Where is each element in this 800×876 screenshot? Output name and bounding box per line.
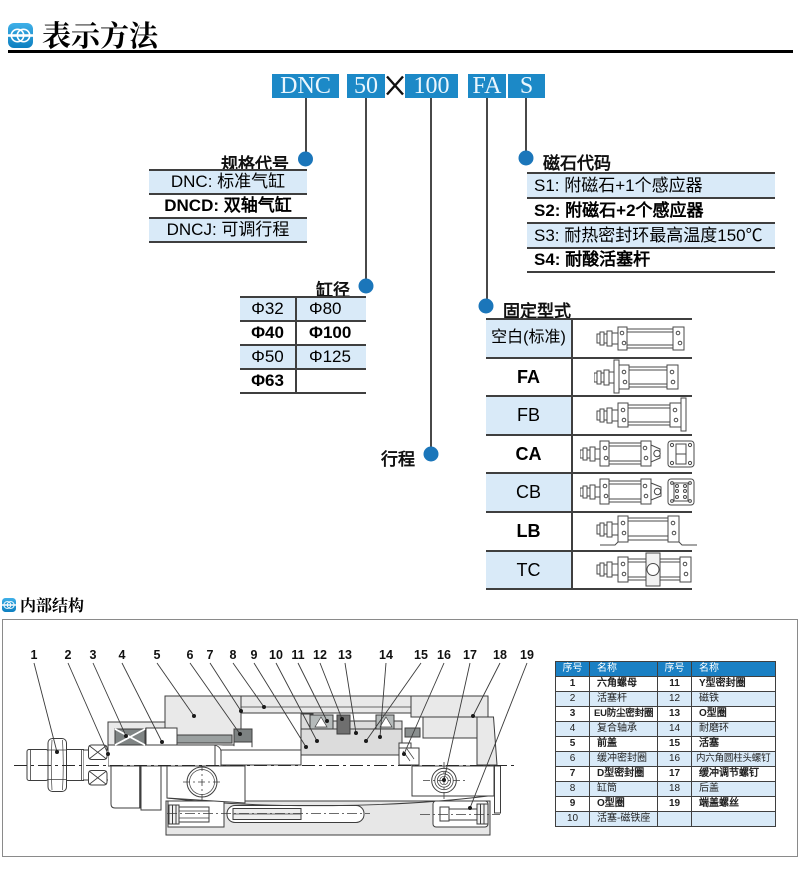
svg-text:8: 8	[230, 648, 237, 662]
svg-text:10: 10	[269, 648, 283, 662]
svg-text:3: 3	[90, 648, 97, 662]
svg-text:17: 17	[463, 648, 477, 662]
svg-text:14: 14	[379, 648, 393, 662]
svg-text:12: 12	[313, 648, 327, 662]
svg-text:11: 11	[291, 648, 304, 662]
svg-text:15: 15	[414, 648, 428, 662]
svg-text:5: 5	[154, 648, 161, 662]
svg-text:7: 7	[207, 648, 214, 662]
svg-text:2: 2	[65, 648, 72, 662]
svg-text:13: 13	[338, 648, 352, 662]
svg-text:9: 9	[251, 648, 258, 662]
svg-text:16: 16	[437, 648, 451, 662]
svg-text:6: 6	[187, 648, 194, 662]
svg-text:19: 19	[520, 648, 534, 662]
svg-text:1: 1	[31, 648, 38, 662]
svg-text:18: 18	[493, 648, 507, 662]
svg-text:4: 4	[119, 648, 126, 662]
